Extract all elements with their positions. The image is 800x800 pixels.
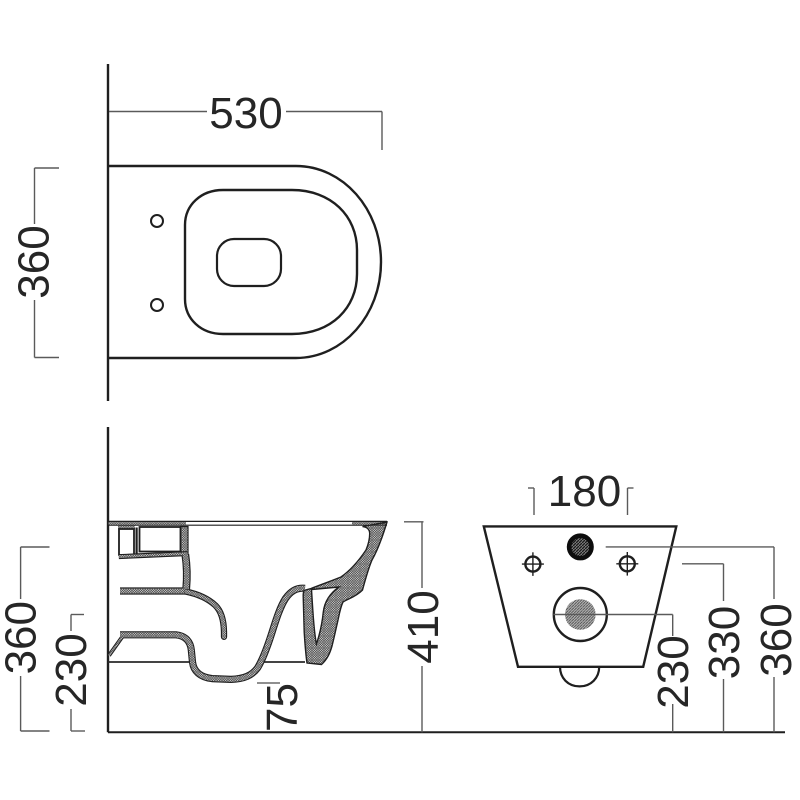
svg-text:330: 330 bbox=[700, 606, 749, 679]
svg-text:360: 360 bbox=[752, 603, 800, 676]
svg-text:360: 360 bbox=[10, 225, 59, 298]
svg-text:75: 75 bbox=[258, 683, 307, 732]
svg-text:230: 230 bbox=[649, 635, 698, 708]
svg-text:360: 360 bbox=[0, 601, 46, 674]
svg-text:410: 410 bbox=[399, 590, 448, 663]
svg-text:230: 230 bbox=[47, 633, 96, 706]
svg-text:530: 530 bbox=[209, 89, 282, 138]
svg-text:180: 180 bbox=[548, 467, 621, 516]
